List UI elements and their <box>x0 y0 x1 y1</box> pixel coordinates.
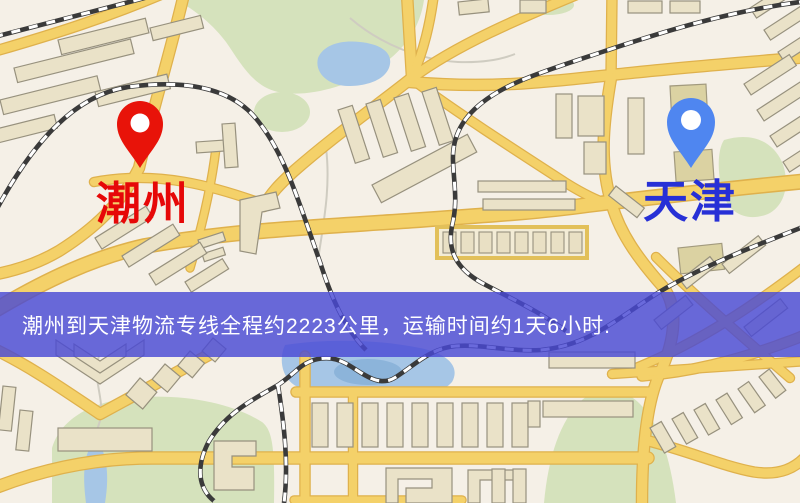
pin-hole <box>131 114 150 133</box>
pin-hole <box>681 110 701 130</box>
map-image: 潮州 天津 <box>0 0 800 503</box>
map-container: 潮州 天津 潮州到天津物流专线全程约2223公里，运输时间约1天6小时. <box>0 0 800 503</box>
route-info-banner: 潮州到天津物流专线全程约2223公里，运输时间约1天6小时. <box>0 292 800 357</box>
route-info-text: 潮州到天津物流专线全程约2223公里，运输时间约1天6小时. <box>0 310 611 340</box>
origin-city-label: 潮州 <box>96 178 190 229</box>
destination-city-label: 天津 <box>643 176 737 227</box>
